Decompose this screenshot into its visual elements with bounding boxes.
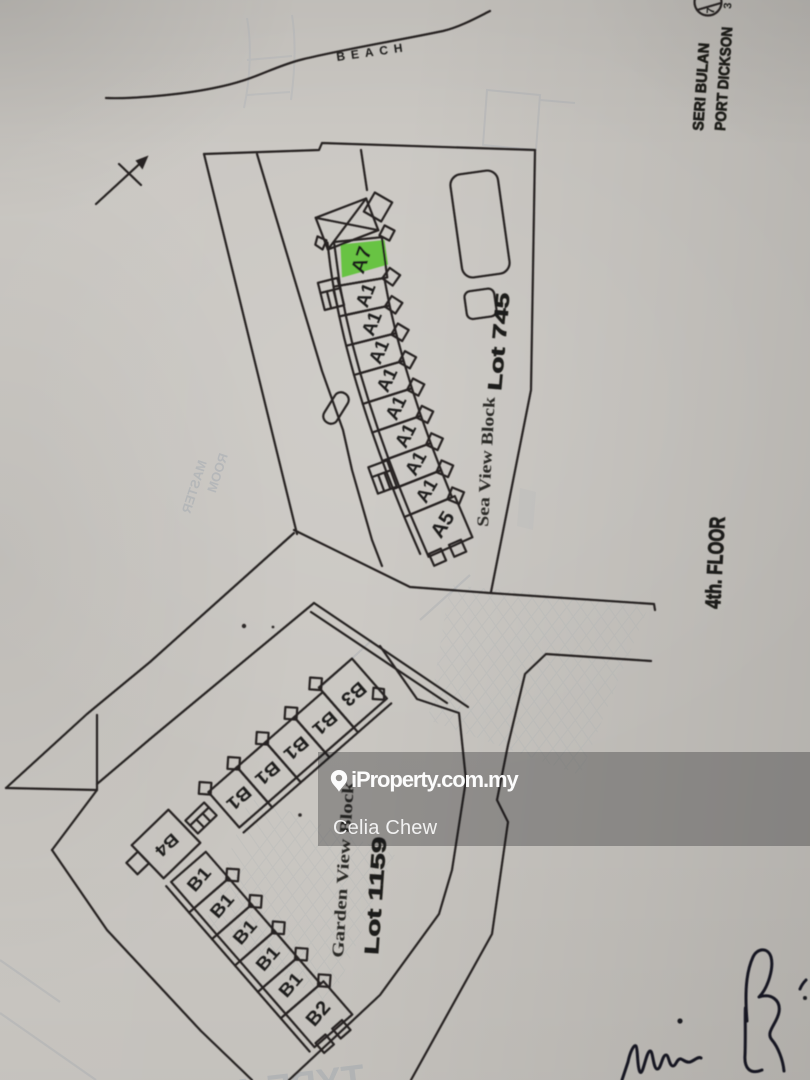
svg-text:A1: A1 [352, 280, 380, 310]
svg-text:4th. FLOOR: 4th. FLOOR [701, 516, 730, 609]
svg-text:B1: B1 [251, 757, 284, 789]
svg-text:Sea View Block: Sea View Block [473, 395, 499, 527]
svg-text:B3: B3 [336, 677, 370, 711]
svg-text:3: 3 [722, 2, 734, 9]
svg-text:PORT DICKSON: PORT DICKSON [712, 26, 736, 131]
svg-text:B4: B4 [151, 829, 183, 860]
svg-text:B1: B1 [308, 707, 341, 739]
svg-text:A5: A5 [427, 508, 460, 543]
svg-text:BEACH: BEACH [335, 40, 409, 64]
svg-text:SERI BULAN: SERI BULAN [690, 42, 713, 131]
svg-text:ROOM: ROOM [204, 451, 231, 494]
svg-text:Lot 745: Lot 745 [485, 291, 515, 391]
svg-text:B1: B1 [280, 732, 313, 764]
svg-text:7: 7 [705, 7, 717, 14]
svg-text:B2: B2 [302, 997, 336, 1031]
svg-text:B1: B1 [223, 782, 256, 814]
svg-text:A1: A1 [365, 337, 394, 368]
svg-text:A1: A1 [358, 308, 387, 339]
svg-text:Lot 1159: Lot 1159 [361, 836, 391, 955]
